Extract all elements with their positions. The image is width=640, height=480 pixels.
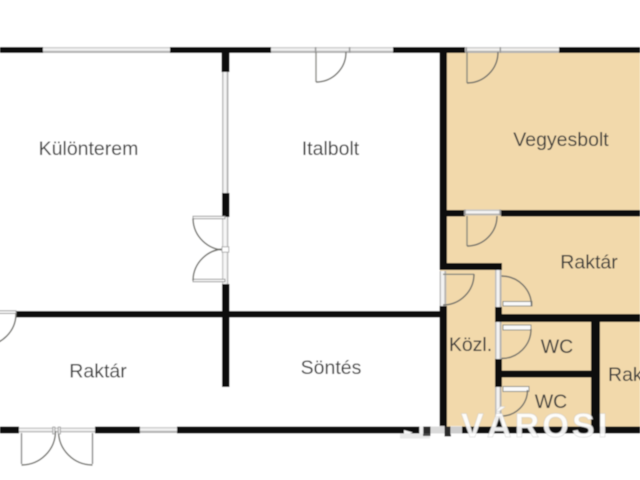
svg-text:Különterem: Különterem	[39, 138, 139, 160]
svg-text:Raktár: Raktár	[69, 361, 127, 383]
svg-text:Raktár: Raktár	[608, 364, 640, 386]
svg-text:Vegyesbolt: Vegyesbolt	[513, 129, 609, 151]
svg-text:Raktár: Raktár	[560, 252, 618, 274]
svg-text:Italbolt: Italbolt	[302, 138, 360, 160]
svg-text:WC: WC	[541, 336, 574, 358]
svg-text:Söntés: Söntés	[301, 357, 362, 379]
svg-text:Közl.: Közl.	[449, 334, 492, 356]
svg-text:VÁROSI: VÁROSI	[461, 407, 611, 445]
